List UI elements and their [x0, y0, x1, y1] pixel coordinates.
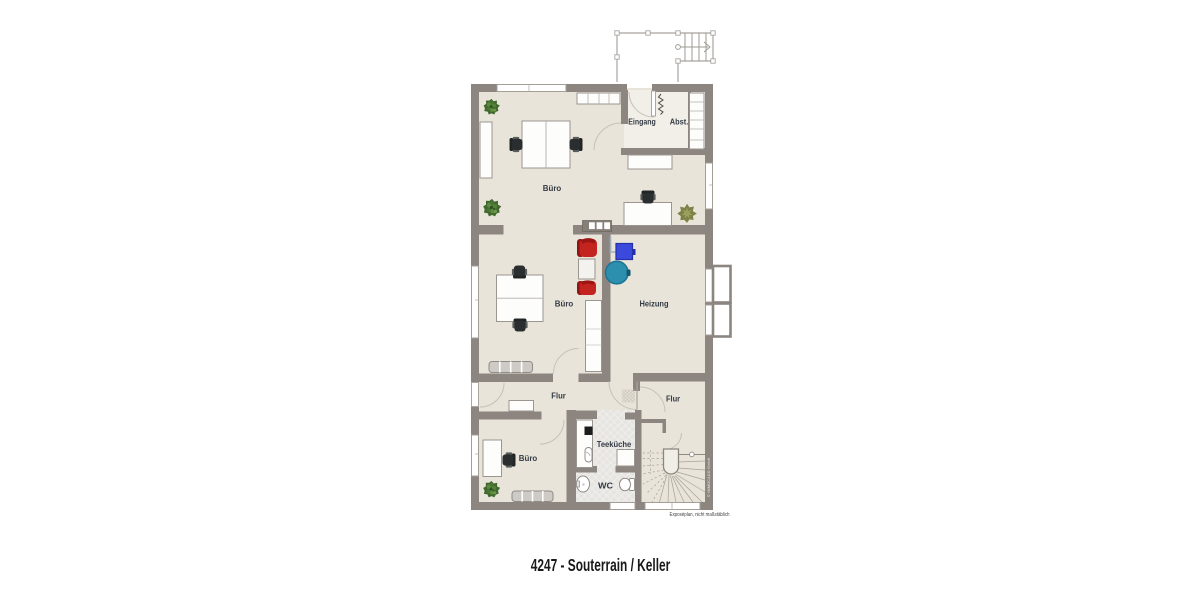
svg-text:Exposéplan, nicht maßstäblich: Exposéplan, nicht maßstäblich — [670, 512, 730, 518]
svg-text:Heizung: Heizung — [640, 300, 669, 309]
svg-text:Eingang: Eingang — [628, 118, 656, 127]
svg-text:WC: WC — [598, 482, 613, 491]
svg-text:Büro: Büro — [543, 184, 562, 193]
svg-text:Teeküche: Teeküche — [597, 440, 632, 449]
svg-text:© IMMOCADO GmbH: © IMMOCADO GmbH — [707, 457, 711, 497]
svg-text:Abst.: Abst. — [670, 118, 689, 127]
svg-text:Flur: Flur — [551, 392, 566, 401]
svg-text:Büro: Büro — [555, 300, 574, 309]
svg-text:4247 - Souterrain / Keller: 4247 - Souterrain / Keller — [531, 555, 671, 575]
svg-text:Flur: Flur — [666, 395, 681, 404]
svg-text:Büro: Büro — [519, 454, 538, 463]
